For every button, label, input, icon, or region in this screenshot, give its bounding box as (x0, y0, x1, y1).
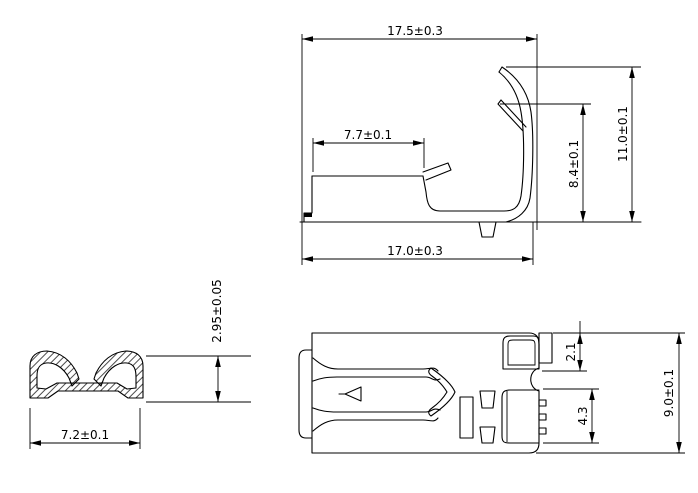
dim-label-tab-height: 2.1 (564, 342, 578, 361)
plan-contact-tip (539, 333, 552, 363)
dim-section-height: 2.95±0.05 (210, 279, 224, 402)
dim-overall-width-top: 17.5±0.3 (302, 24, 537, 39)
direction-arrow-marker (339, 387, 361, 401)
dim-overall-height: 11.0±0.1 (616, 67, 632, 222)
side-spring-outer (499, 67, 533, 222)
dim-section-width: 7.2±0.1 (30, 428, 140, 443)
dim-label-section-width: 7.2±0.1 (61, 428, 109, 442)
plan-center-window (460, 397, 473, 438)
dim-barrel-length: 7.7±0.1 (313, 128, 424, 143)
side-bottom-tab (479, 222, 496, 237)
plan-contact-block (502, 390, 539, 443)
side-channel-inner (423, 72, 524, 211)
plan-wire-cap (299, 350, 312, 438)
section-view: 2.95±0.05 7.2±0.1 (30, 279, 251, 449)
dim-overall-width-bottom: 17.0±0.3 (302, 244, 533, 259)
side-lance (423, 163, 451, 180)
terminal-drawing: 17.5±0.3 7.7±0.1 17.0±0.3 8.4±0.1 11.0±0… (0, 0, 698, 493)
dim-label-spring-height: 8.4±0.1 (567, 140, 581, 188)
dim-label-overall-width-top: 17.5±0.3 (387, 24, 443, 38)
side-left-step (304, 213, 312, 217)
plan-block-tab-2 (539, 414, 546, 420)
plan-block-tab-1 (539, 400, 546, 406)
dim-label-plan-overall-height: 9.0±0.1 (662, 369, 676, 417)
plan-bottom-seam-slot (313, 408, 440, 431)
dim-plan-overall-height: 9.0±0.1 (662, 333, 679, 453)
dim-label-section-height: 2.95±0.05 (210, 279, 224, 343)
side-view: 17.5±0.3 7.7±0.1 17.0±0.3 8.4±0.1 11.0±0… (300, 24, 641, 265)
dim-tab-height: 2.1 (564, 333, 580, 371)
plan-top-tab-inner (508, 340, 535, 365)
dim-label-barrel-length: 7.7±0.1 (344, 128, 392, 142)
dim-label-overall-width-bottom: 17.0±0.3 (387, 244, 443, 258)
dim-label-contact-height: 4.3 (576, 406, 590, 425)
plan-lower-lance-window (480, 427, 495, 443)
plan-upper-lance-window (480, 391, 495, 408)
plan-top-seam-slot (313, 358, 440, 381)
technical-drawing-page: 17.5±0.3 7.7±0.1 17.0±0.3 8.4±0.1 11.0±0… (0, 0, 698, 493)
plan-chevron-seam (429, 368, 455, 416)
dim-label-overall-height: 11.0±0.1 (616, 106, 630, 162)
plan-view: 2.1 4.3 9.0±0.1 (299, 321, 685, 453)
dim-contact-height: 4.3 (576, 389, 592, 443)
plan-block-tab-3 (539, 428, 546, 434)
section-profile (30, 351, 143, 398)
dim-spring-height: 8.4±0.1 (567, 104, 583, 222)
